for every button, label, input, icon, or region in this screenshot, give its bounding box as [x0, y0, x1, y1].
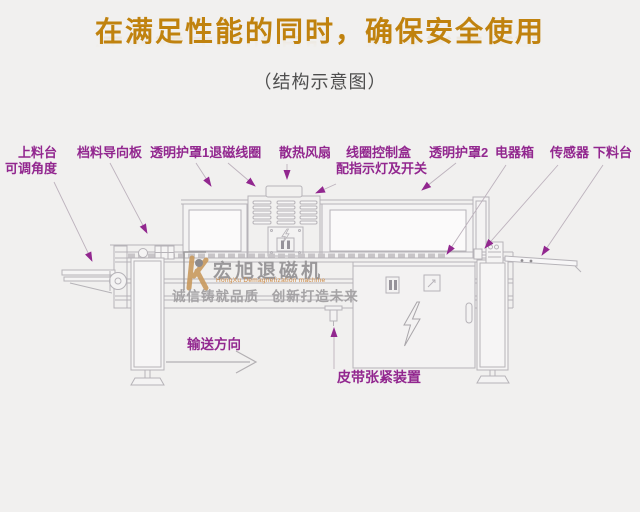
conveyor-direction-arrow: [166, 351, 256, 373]
leader-discharge-table: [542, 165, 603, 255]
leader-cover2: [422, 163, 456, 190]
clear-cover-1-window: [183, 204, 247, 258]
leader-sensor: [485, 165, 558, 248]
page-subtitle: （结构示意图）: [0, 68, 640, 94]
discharge-table-drawing: [505, 256, 581, 272]
label-clear-cover-2: 透明护罩2: [429, 146, 488, 161]
top-beam: [181, 200, 474, 204]
electrical-box-drawing: [353, 262, 475, 368]
label-feed-table: 上料台: [18, 146, 57, 161]
right-leg: [477, 260, 509, 383]
watermark-brand-en: HongXu Demagnetization machine: [216, 277, 325, 284]
label-indicator-switch: 配指示灯及开关: [336, 162, 427, 177]
clear-cover-2-window: [322, 204, 473, 258]
feed-table-drawing: [62, 270, 127, 293]
label-sensor: 传感器: [550, 146, 589, 161]
left-leg: [131, 258, 164, 385]
leader-lines: [54, 163, 603, 369]
lightning-bolt-icon: [404, 302, 420, 346]
belt-tensioner-drawing: [325, 306, 342, 326]
top-row-end-cap: [473, 197, 489, 258]
leader-cover1: [196, 163, 211, 186]
label-stock-guide-plate: 档料导向板: [77, 146, 142, 161]
leader-feed-table: [54, 182, 92, 261]
cooling-fan-box: [248, 186, 320, 258]
dial-icon: [428, 280, 435, 287]
watermark-slogan: 诚信铸就品质 创新打造未来: [172, 285, 359, 305]
diagram-page: 在满足性能的同时，确保安全使用 在满足性能的同时，确保安全使用 （结构示意图） …: [0, 0, 640, 512]
label-cooling-fan: 散热风扇: [279, 146, 331, 161]
leader-degauss-coil: [228, 163, 255, 186]
leader-coil-control-box: [316, 184, 336, 193]
leader-electrical-box: [447, 165, 506, 254]
label-clear-cover-1-coil: 透明护罩1退磁线圈: [150, 146, 261, 161]
stock-guide-plate-assembly: [139, 246, 175, 266]
label-electrical-box: 电器箱: [495, 146, 534, 161]
vent-slats: [253, 201, 317, 224]
small-lightning-icon: [282, 229, 289, 243]
coil-control-panel: [268, 227, 303, 256]
sensor-drawing: [474, 242, 503, 263]
label-feed-table-adjustable: 可调角度: [5, 162, 57, 177]
page-title: 在满足性能的同时，确保安全使用: [0, 16, 640, 48]
label-discharge-table: 下料台: [593, 146, 632, 161]
leader-guide-plate: [110, 163, 147, 233]
label-conveyor-direction: 输送方向: [187, 337, 241, 353]
label-coil-control-box: 线圈控制盒: [346, 146, 411, 161]
label-belt-tensioner: 皮带张紧装置: [337, 369, 421, 385]
